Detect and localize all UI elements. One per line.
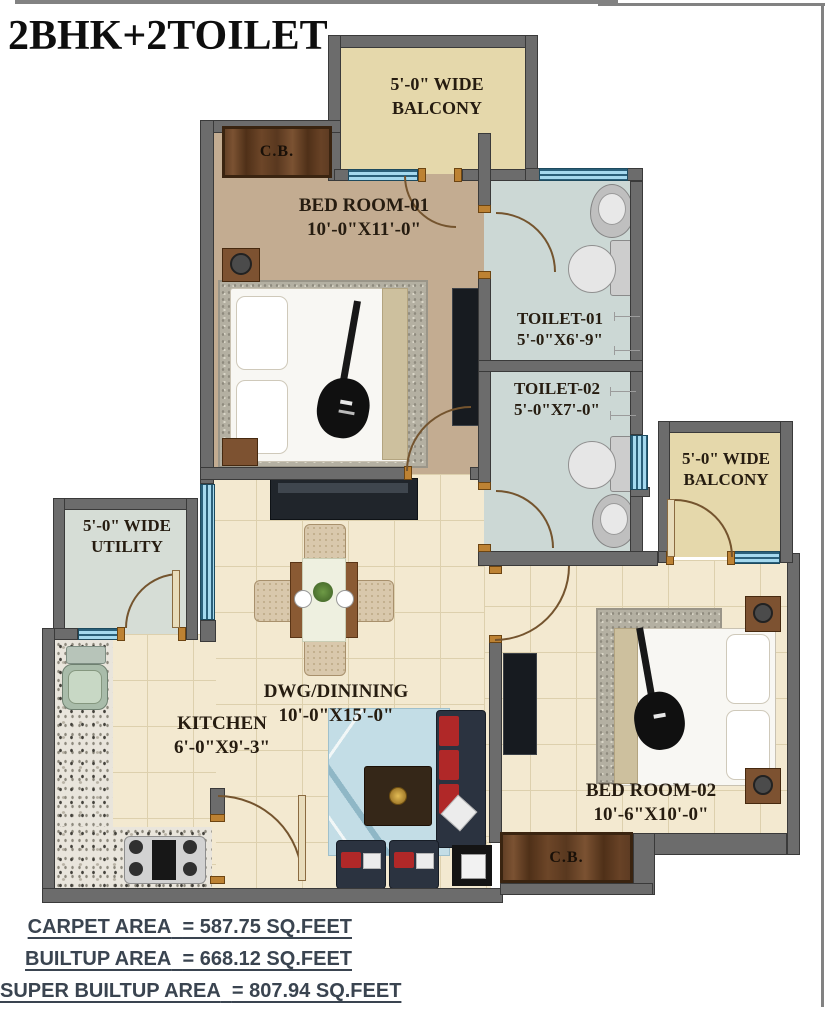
washbasin-bowl <box>600 503 628 535</box>
wall <box>787 553 800 855</box>
tv-cabinet-top <box>278 483 408 493</box>
cupboard-label: C.B. <box>549 849 583 867</box>
toilet2-label: TOILET-02 5'-0"X7'-0" <box>514 378 600 420</box>
wall <box>658 421 793 433</box>
wall <box>478 551 658 566</box>
page-border-top-right <box>598 3 825 6</box>
balcony-top-label: 5'-0" WIDE BALCONY <box>390 72 483 120</box>
plate <box>336 590 354 608</box>
lamp-icon <box>753 775 773 795</box>
dimension-tick <box>614 350 640 351</box>
table-medallion <box>389 787 407 805</box>
cupboard-label: C.B. <box>260 143 294 161</box>
armchair-cushion <box>341 852 361 868</box>
wall <box>478 272 491 490</box>
armchair-pillow <box>416 853 434 869</box>
window <box>539 168 628 181</box>
door-post <box>117 627 125 641</box>
door-leaf <box>298 795 306 881</box>
carpet-area-line: CARPET AREA = 587.75 SQ.FEET <box>0 916 352 939</box>
wall <box>328 35 538 48</box>
area-summary: CARPET AREA = 587.75 SQ.FEET BUILTUP ARE… <box>0 916 352 1012</box>
tv-unit <box>503 653 537 755</box>
plant-icon <box>313 582 333 602</box>
dimension-tick <box>614 316 640 317</box>
door-post <box>478 544 491 552</box>
side-table-top <box>461 854 486 879</box>
window <box>630 435 648 490</box>
door-post <box>178 627 186 641</box>
wall <box>500 883 653 895</box>
door-leaf <box>667 499 675 557</box>
wall <box>53 498 198 510</box>
cupboard: C.B. <box>500 832 633 883</box>
washbasin-bowl <box>598 193 626 225</box>
bedroom2-pillow <box>726 634 770 704</box>
sofa-cushion <box>439 750 459 780</box>
page-border-top-left <box>15 0 618 4</box>
plate <box>294 590 312 608</box>
window <box>200 484 215 620</box>
burner <box>129 862 143 876</box>
dimension-tick <box>610 415 636 416</box>
wall <box>200 467 412 480</box>
toilet1-label: TOILET-01 5'-0"X6'-9" <box>517 308 603 350</box>
floor-plan-page: 2BHK+2TOILET <box>0 0 825 1024</box>
wall <box>53 628 78 640</box>
wall <box>53 498 65 640</box>
stove-panel <box>152 840 176 880</box>
lamp-icon <box>753 603 773 623</box>
bedside-table <box>222 438 258 466</box>
wall <box>780 421 793 563</box>
kitchen-label: KITCHEN 6'-0"X9'-3" <box>174 712 270 760</box>
wall <box>525 35 538 181</box>
wall <box>630 181 643 435</box>
sink-bowl <box>68 670 102 704</box>
wall <box>478 133 491 213</box>
cupboard: C.B. <box>222 126 332 178</box>
wall <box>630 490 643 553</box>
burner <box>183 862 197 876</box>
toilet-bowl <box>568 245 616 293</box>
wall <box>489 641 502 843</box>
bedroom1-label: BED ROOM-01 10'-0"X11'-0" <box>299 194 429 242</box>
dining-label: DWG/DININING 10'-0"X15'-0" <box>264 680 409 728</box>
utility-label: 5'-0" WIDE UTILITY <box>83 515 171 557</box>
sofa-cushion <box>439 716 459 746</box>
armchair-cushion <box>394 852 414 868</box>
lamp-icon <box>230 253 252 275</box>
bedroom2-label: BED ROOM-02 10'-6"X10'-0" <box>586 779 716 827</box>
plan-title: 2BHK+2TOILET <box>8 12 328 60</box>
door-leaf <box>172 570 180 628</box>
burner <box>129 840 143 854</box>
wall <box>633 833 787 855</box>
wall <box>42 888 503 903</box>
wall <box>186 498 198 640</box>
super-builtup-area-line: SUPER BUILTUP AREA = 807.94 SQ.FEET <box>0 980 352 1003</box>
door-post <box>478 205 491 213</box>
builtup-area-line: BUILTUP AREA = 668.12 SQ.FEET <box>0 948 352 971</box>
wall <box>478 360 643 372</box>
wall <box>42 628 55 903</box>
wall <box>200 120 214 484</box>
toilet-bowl <box>568 441 616 489</box>
wall <box>200 620 216 642</box>
door-post <box>478 271 491 279</box>
door-post <box>478 482 491 490</box>
bedroom1-pillow <box>236 296 288 370</box>
armchair-pillow <box>363 853 381 869</box>
burner <box>183 840 197 854</box>
sink-drainboard <box>66 646 106 664</box>
dimension-tick <box>610 391 636 392</box>
window <box>733 551 780 564</box>
balcony-right-label: 5'-0" WIDE BALCONY <box>682 448 770 490</box>
wall <box>626 168 643 181</box>
page-border-right <box>821 3 824 1007</box>
